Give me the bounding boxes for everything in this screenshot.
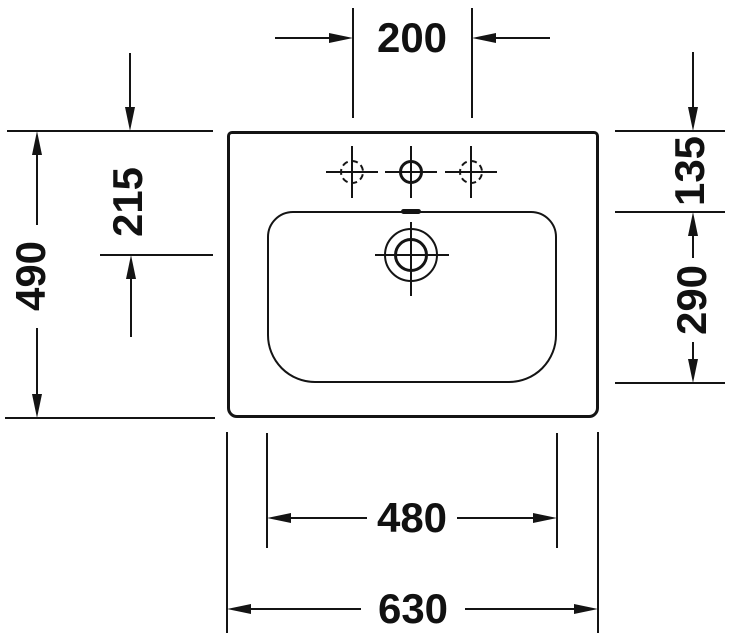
optional-hole-icon bbox=[340, 160, 364, 184]
dimension-line bbox=[251, 608, 361, 610]
dim-490-label: 490 bbox=[10, 238, 52, 314]
dimension-line bbox=[275, 37, 331, 39]
dim-630-label: 630 bbox=[375, 588, 451, 630]
extension-line bbox=[226, 432, 228, 633]
washbasin-technical-drawing: 200 490 215 135 290 bbox=[0, 0, 730, 642]
dimension-line bbox=[692, 52, 694, 108]
arrowhead-icon bbox=[688, 359, 698, 383]
extension-line bbox=[615, 211, 725, 213]
dimension-line bbox=[457, 517, 533, 519]
extension-line bbox=[266, 433, 268, 548]
extension-line bbox=[100, 254, 213, 256]
arrowhead-icon bbox=[32, 131, 42, 155]
dimension-line bbox=[129, 53, 131, 109]
drain-inner-circle bbox=[394, 238, 428, 272]
arrowhead-icon bbox=[688, 107, 698, 131]
arrowhead-icon bbox=[688, 212, 698, 236]
dimension-line bbox=[36, 153, 38, 225]
bottom-edge-notch bbox=[492, 415, 508, 418]
extension-line bbox=[615, 382, 725, 384]
dimension-line bbox=[465, 608, 574, 610]
bottom-edge-notch bbox=[548, 415, 564, 418]
extension-line bbox=[352, 8, 354, 118]
dim-290-label: 290 bbox=[671, 262, 713, 338]
optional-hole-icon bbox=[459, 160, 483, 184]
arrowhead-icon bbox=[126, 255, 136, 279]
arrowhead-icon bbox=[533, 513, 557, 523]
extension-line bbox=[556, 433, 558, 548]
dimension-line bbox=[494, 37, 550, 39]
dimension-line bbox=[130, 279, 132, 337]
dimension-line bbox=[291, 517, 367, 519]
dim-200-label: 200 bbox=[374, 17, 450, 59]
extension-line bbox=[597, 432, 599, 633]
dimension-line bbox=[36, 328, 38, 396]
extension-line bbox=[471, 8, 473, 118]
arrowhead-icon bbox=[329, 33, 353, 43]
dim-215-label: 215 bbox=[107, 164, 149, 240]
arrowhead-icon bbox=[472, 33, 496, 43]
dim-135-label: 135 bbox=[669, 133, 711, 209]
arrowhead-icon bbox=[227, 604, 251, 614]
faucet-hole-icon bbox=[399, 160, 423, 184]
bottom-edge-notch bbox=[314, 415, 330, 418]
bottom-edge-notch bbox=[256, 415, 272, 418]
arrowhead-icon bbox=[125, 107, 135, 131]
extension-line bbox=[615, 130, 725, 132]
dimension-line bbox=[692, 236, 694, 258]
arrowhead-icon bbox=[32, 394, 42, 418]
arrowhead-icon bbox=[574, 604, 598, 614]
overflow-slot bbox=[401, 209, 421, 214]
dim-480-label: 480 bbox=[374, 497, 450, 539]
arrowhead-icon bbox=[267, 513, 291, 523]
dimension-line bbox=[692, 342, 694, 360]
